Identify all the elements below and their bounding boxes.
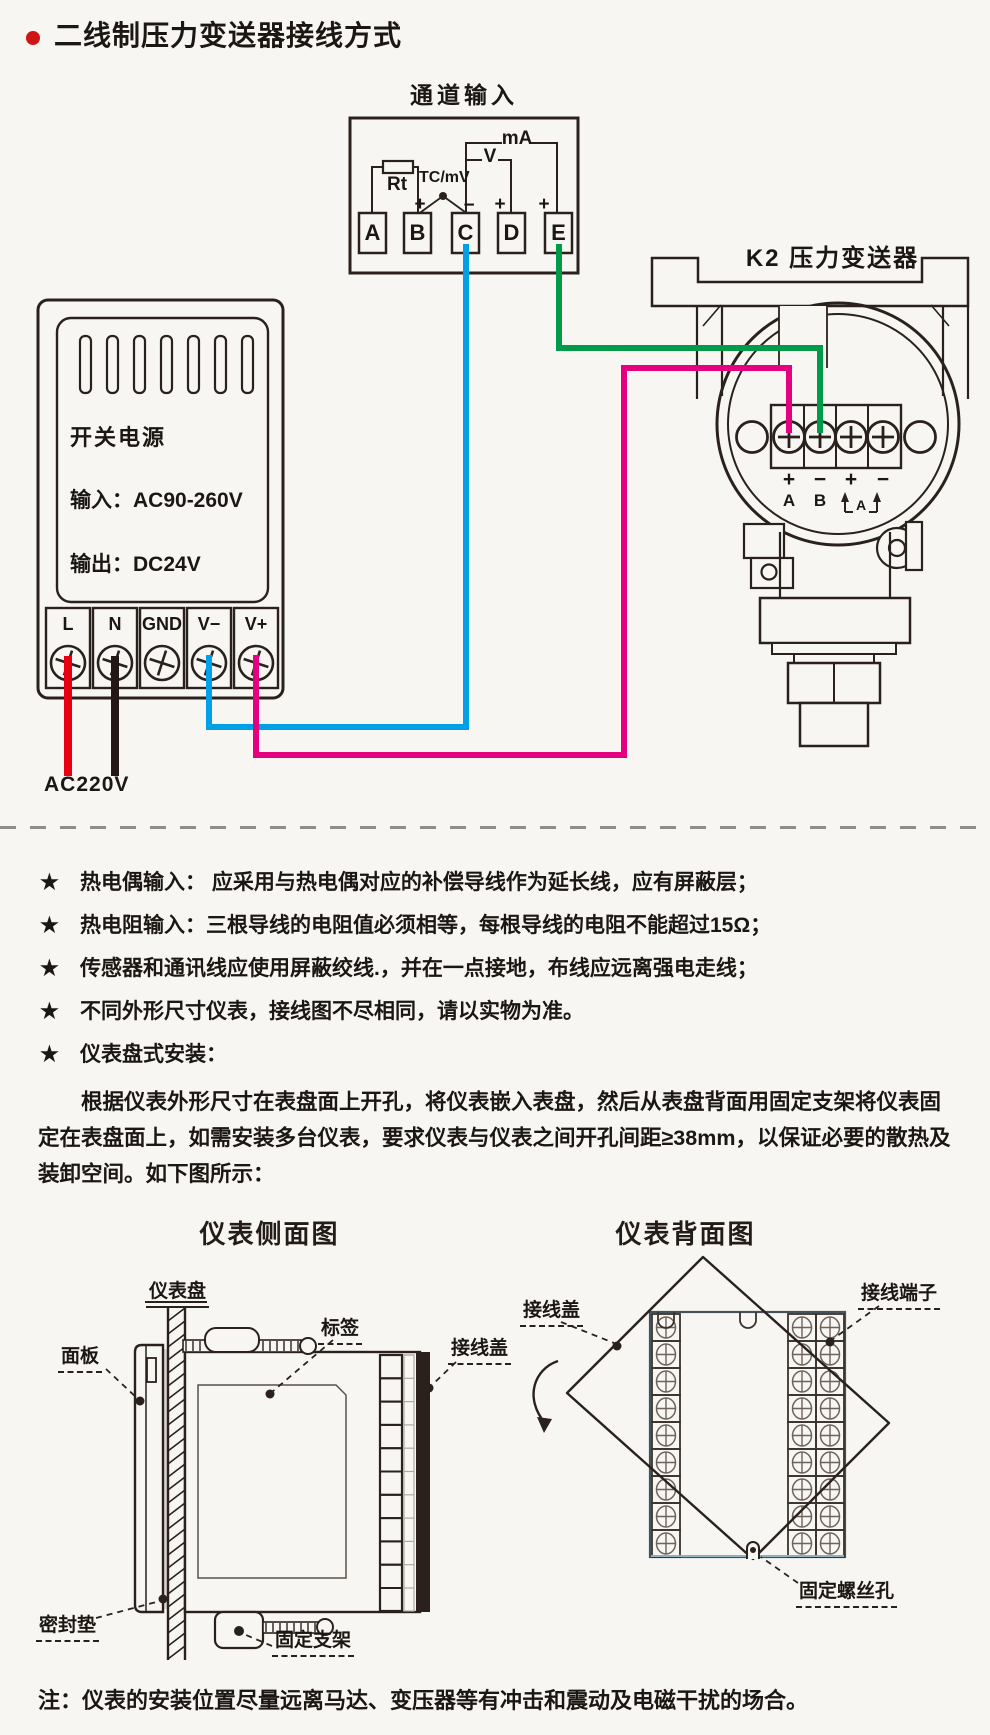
sign-plus-e: +: [536, 194, 552, 216]
label-wiring-cover-side: 接线盖: [448, 1333, 511, 1365]
back-view-title: 仪表背面图: [598, 1214, 773, 1251]
label-panel-board: 仪表盘: [146, 1276, 209, 1308]
wire-vplus: [256, 368, 789, 755]
label-wiring-cover-back: 接线盖: [520, 1295, 583, 1327]
side-view-title: 仪表侧面图: [182, 1214, 357, 1251]
manual-page: 二线制压力变送器接线方式 通道输入 A B C D E Rt TC/mV V m…: [0, 0, 990, 1735]
terminal-b: B: [404, 213, 431, 253]
note-text: 传感器和通讯线应使用屏蔽绞线.，并在一点接地，布线应远离强电走线；: [80, 954, 758, 983]
note-text: 热电偶输入： 应采用与热电偶对应的补偿导线作为延长线，应有屏蔽层；: [80, 868, 758, 897]
tx-channel-b: B: [808, 491, 832, 511]
dashed-divider: [0, 826, 990, 829]
v-label: V: [481, 146, 499, 168]
star-icon: ★: [40, 954, 70, 983]
label-screw-hole: 固定螺丝孔: [796, 1576, 897, 1608]
label-bracket: 固定支架: [272, 1625, 354, 1657]
note-item: ★ 传感器和通讯线应使用屏蔽绞线.，并在一点接地，布线应远离强电走线；: [40, 954, 970, 983]
terminal-d: D: [498, 213, 525, 253]
note-text: 热电阻输入：三根导线的电阻值必须相等，每根导线的电阻不能超过15Ω；: [80, 911, 771, 940]
psu-terminal-l: L: [46, 611, 90, 637]
star-icon: ★: [40, 868, 70, 897]
transmitter-title: K2 压力变送器: [690, 238, 975, 273]
tx-channel-a: A: [777, 491, 801, 511]
section-bullet-icon: [26, 31, 40, 45]
notes-list: ★ 热电偶输入： 应采用与热电偶对应的补偿导线作为延长线，应有屏蔽层； ★ 热电…: [40, 868, 970, 1083]
side-view-diagram: [96, 1302, 456, 1660]
channel-input-title: 通道输入: [350, 76, 578, 110]
tx-loop-label: A: [852, 497, 870, 513]
psu-terminal-vplus: V+: [234, 611, 278, 637]
note-item: ★ 不同外形尺寸仪表，接线图不尽相同，请以实物为准。: [40, 997, 970, 1026]
terminal-e: E: [545, 213, 572, 253]
tx-sign-3: −: [871, 468, 895, 492]
label-front-panel: 面板: [58, 1341, 102, 1373]
ma-label: mA: [501, 128, 533, 150]
tx-sign-0: +: [777, 468, 801, 492]
terminal-c: C: [452, 213, 479, 253]
note-text: 不同外形尺寸仪表，接线图不尽相同，请以实物为准。: [80, 997, 584, 1026]
note-item: ★ 热电阻输入：三根导线的电阻值必须相等，每根导线的电阻不能超过15Ω；: [40, 911, 970, 940]
label-tag: 标签: [318, 1313, 362, 1345]
psu-name: 开关电源: [70, 420, 166, 452]
note-text: 仪表盘式安装：: [80, 1040, 227, 1069]
tx-sign-1: −: [808, 468, 832, 492]
back-view-diagram: [534, 1257, 889, 1583]
psu-input: 输入：AC90-260V: [70, 484, 243, 514]
psu-terminal-gnd: GND: [140, 611, 184, 637]
star-icon: ★: [40, 911, 70, 940]
sign-plus-b: +: [412, 194, 428, 216]
label-terminal-block: 接线端子: [858, 1278, 940, 1310]
star-icon: ★: [40, 1040, 70, 1069]
install-paragraph: 根据仪表外形尺寸在表盘面上开孔，将仪表嵌入表盘，然后从表盘背面用固定支架将仪表固…: [38, 1084, 956, 1192]
psu-output: 输出：DC24V: [70, 548, 201, 578]
label-gasket: 密封垫: [36, 1610, 99, 1642]
tx-sign-2: +: [839, 468, 863, 492]
psu-terminal-vminus: V−: [187, 611, 231, 637]
mains-label: AC220V: [44, 773, 129, 797]
note-item: ★ 热电偶输入： 应采用与热电偶对应的补偿导线作为延长线，应有屏蔽层；: [40, 868, 970, 897]
rt-label: Rt: [382, 174, 412, 196]
footer-note: 注：仪表的安装位置尽量远离马达、变压器等有冲击和震动及电磁干扰的场合。: [38, 1683, 968, 1715]
terminal-a: A: [359, 213, 386, 253]
star-icon: ★: [40, 997, 70, 1026]
tc-mv-label: TC/mV: [419, 169, 470, 187]
sign-minus-c: −: [461, 195, 477, 217]
page-title: 二线制压力变送器接线方式: [54, 14, 402, 54]
note-item: ★ 仪表盘式安装：: [40, 1040, 970, 1069]
psu-terminal-n: N: [93, 611, 137, 637]
sign-plus-d: +: [492, 194, 508, 216]
